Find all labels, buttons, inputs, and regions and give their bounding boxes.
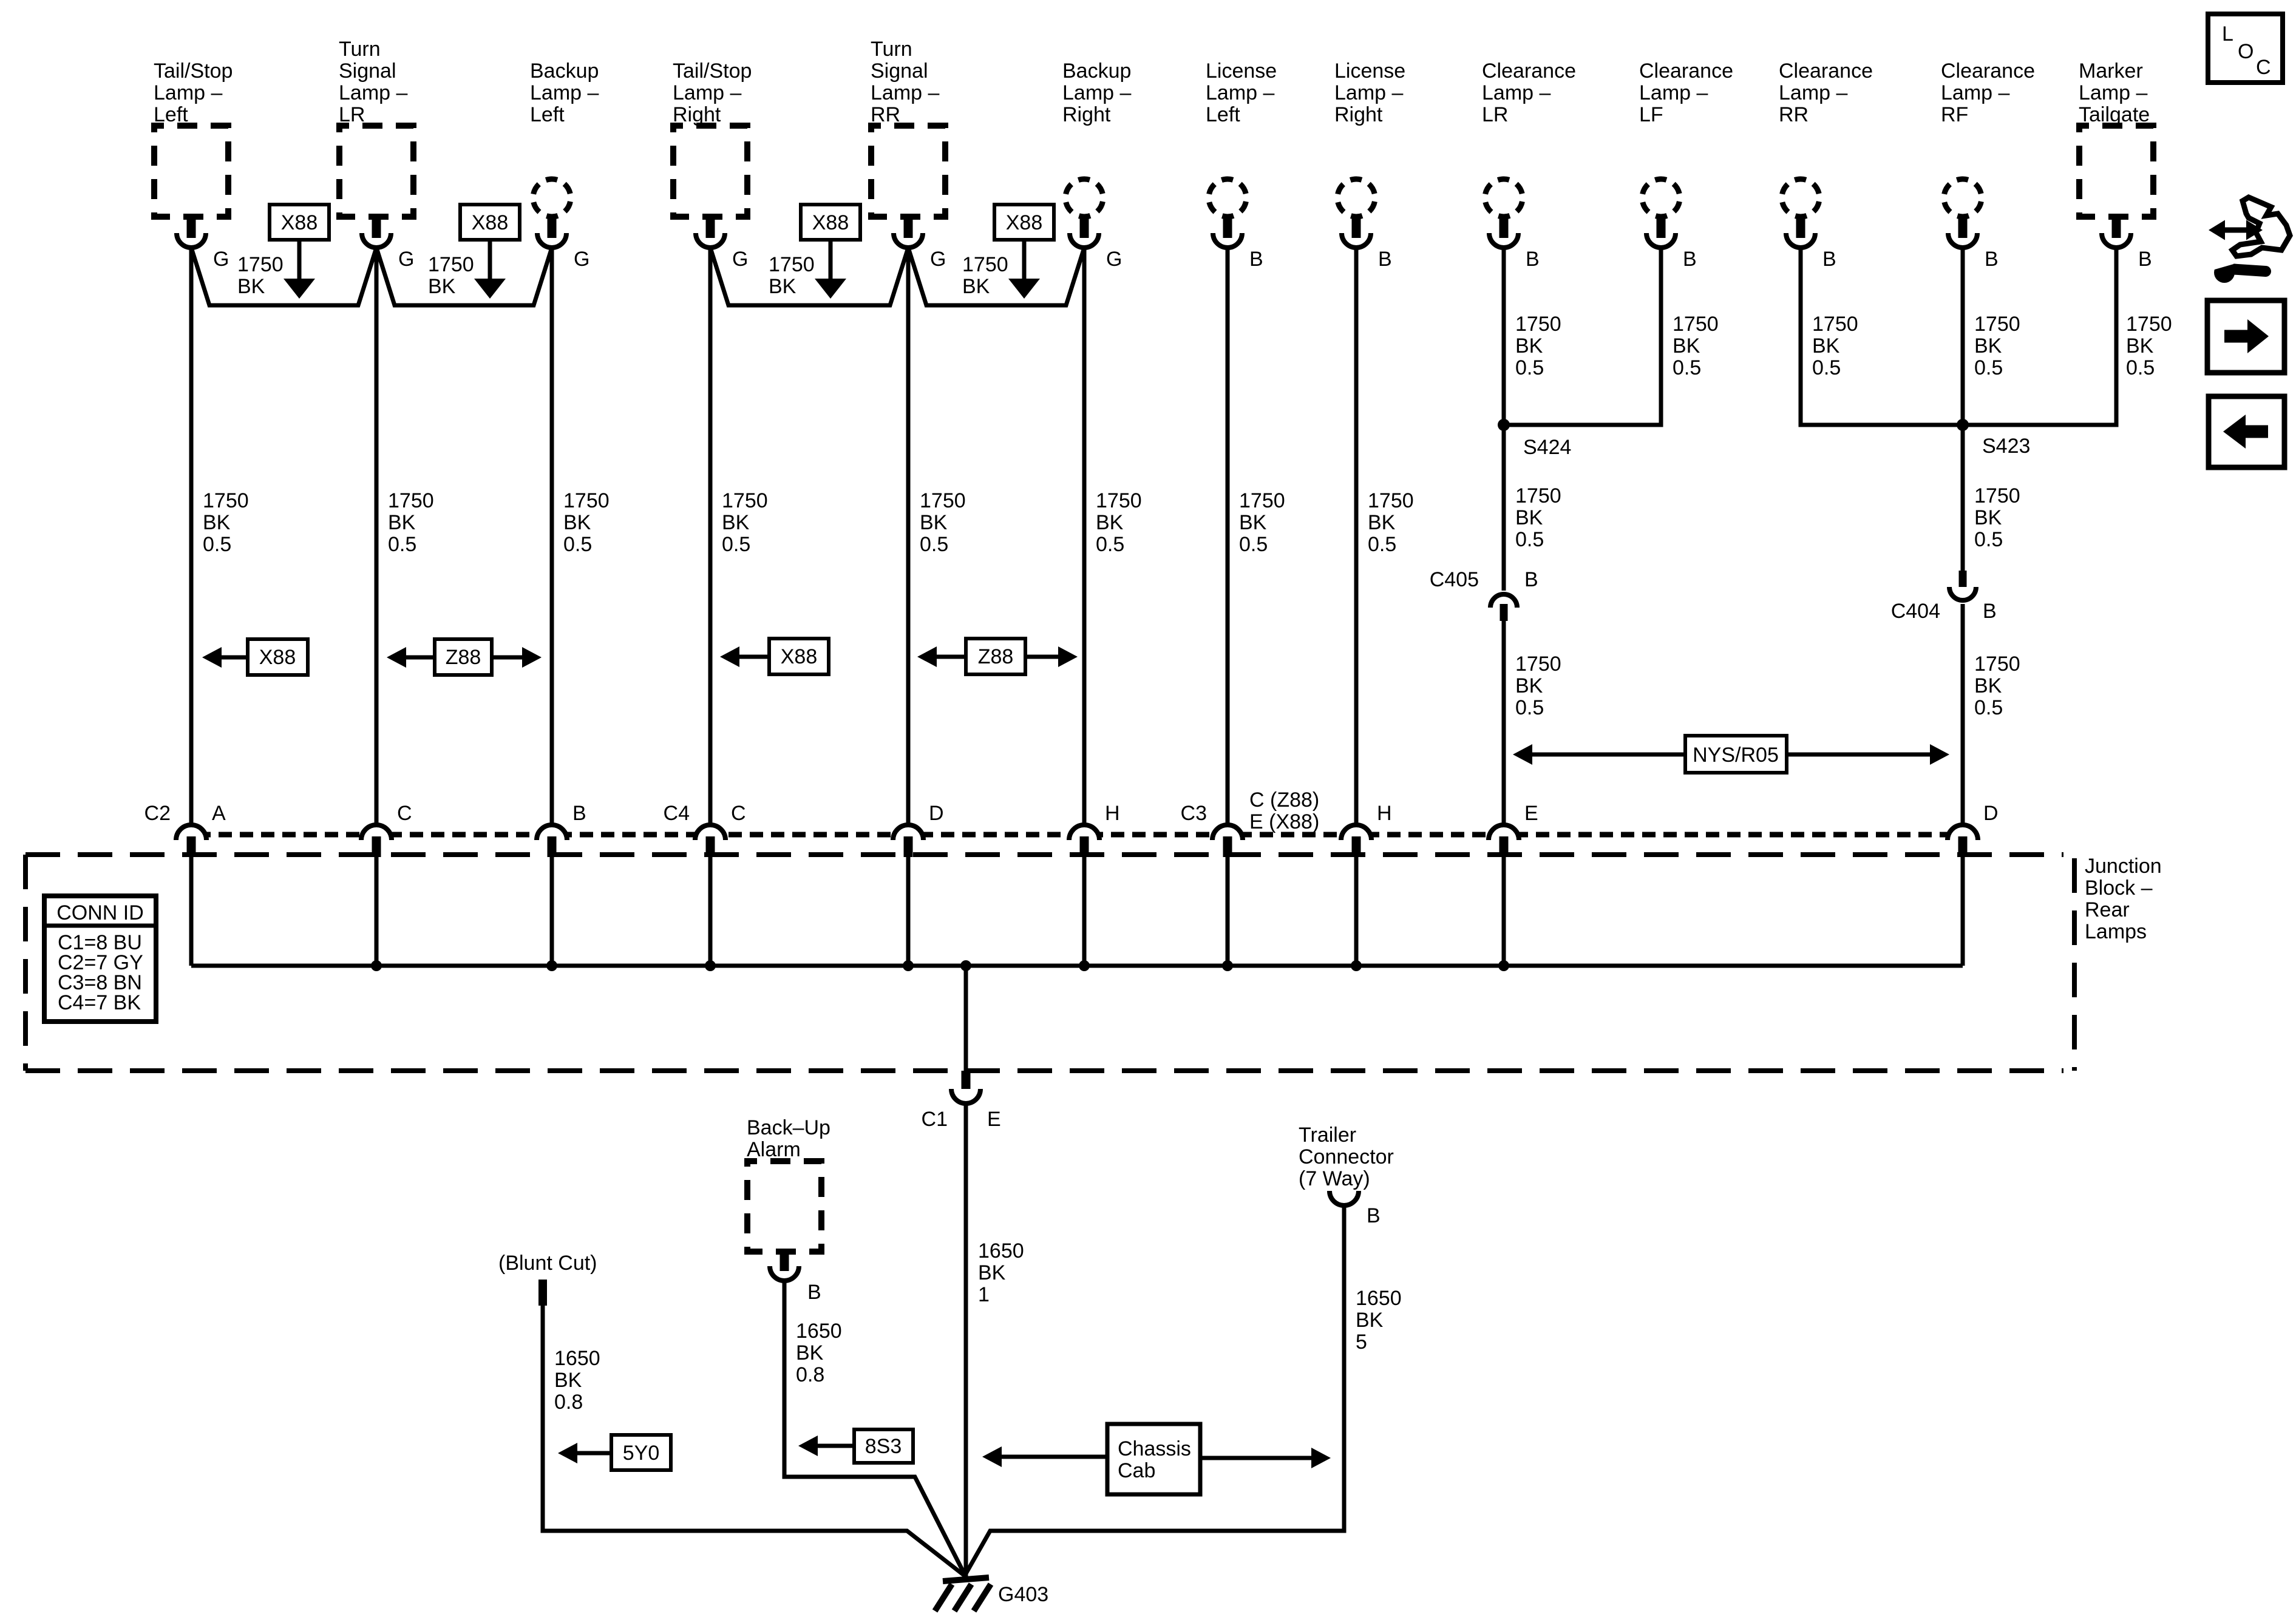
svg-text:C404: C404	[1891, 600, 1940, 623]
svg-text:BK: BK	[722, 511, 750, 534]
svg-text:5Y0: 5Y0	[623, 1442, 660, 1465]
svg-text:Signal: Signal	[339, 59, 396, 83]
svg-text:0.5: 0.5	[1974, 528, 2003, 551]
svg-text:O: O	[2238, 40, 2254, 63]
svg-text:B: B	[2138, 248, 2152, 271]
svg-text:G403: G403	[998, 1583, 1048, 1606]
svg-text:B: B	[1526, 248, 1540, 271]
svg-text:Alarm: Alarm	[747, 1138, 801, 1161]
svg-text:C3: C3	[1181, 802, 1207, 825]
svg-text:H: H	[1105, 802, 1120, 825]
svg-text:LR: LR	[1482, 103, 1508, 126]
svg-text:BK: BK	[920, 511, 948, 534]
svg-text:0.5: 0.5	[563, 533, 592, 556]
svg-text:B: B	[1985, 248, 1999, 271]
svg-text:0.5: 0.5	[1368, 533, 1396, 556]
svg-text:Lamp –: Lamp –	[871, 81, 939, 104]
svg-text:1750: 1750	[1515, 484, 1561, 507]
svg-text:Lamp –: Lamp –	[339, 81, 407, 104]
svg-text:BK: BK	[2126, 334, 2154, 358]
svg-text:Turn: Turn	[871, 38, 912, 61]
svg-text:0.5: 0.5	[1974, 696, 2003, 719]
svg-text:0.5: 0.5	[2126, 356, 2155, 379]
svg-text:BK: BK	[428, 275, 456, 298]
svg-text:C: C	[397, 802, 412, 825]
svg-text:1650: 1650	[554, 1347, 600, 1370]
svg-text:0.5: 0.5	[1673, 356, 1701, 379]
svg-text:1650: 1650	[1356, 1287, 1402, 1310]
svg-text:C: C	[2256, 56, 2271, 79]
svg-text:1650: 1650	[796, 1320, 842, 1343]
svg-text:BK: BK	[1239, 511, 1267, 534]
svg-text:Junction: Junction	[2085, 855, 2162, 878]
svg-text:BK: BK	[388, 511, 416, 534]
svg-text:BK: BK	[796, 1341, 824, 1364]
svg-text:1750: 1750	[1239, 489, 1285, 512]
svg-text:BK: BK	[962, 275, 990, 298]
svg-text:Tail/Stop: Tail/Stop	[673, 59, 752, 83]
svg-text:1750: 1750	[1096, 489, 1142, 512]
svg-text:BK: BK	[1515, 674, 1543, 697]
svg-text:BK: BK	[1368, 511, 1396, 534]
svg-text:Z88: Z88	[446, 646, 481, 669]
svg-text:B: B	[1983, 600, 1997, 623]
svg-text:BK: BK	[237, 275, 265, 298]
svg-text:X88: X88	[281, 211, 318, 234]
svg-text:License: License	[1334, 59, 1405, 83]
svg-text:X88: X88	[781, 645, 818, 668]
svg-text:BK: BK	[1812, 334, 1840, 358]
svg-text:Clearance: Clearance	[1941, 59, 2035, 83]
svg-text:C4: C4	[664, 802, 690, 825]
svg-text:0.5: 0.5	[1096, 533, 1124, 556]
svg-text:B: B	[1378, 248, 1392, 271]
svg-text:Trailer: Trailer	[1299, 1124, 1356, 1147]
svg-text:Lamp –: Lamp –	[1941, 81, 2009, 104]
svg-text:B: B	[1524, 568, 1538, 591]
svg-text:Lamp –: Lamp –	[1334, 81, 1403, 104]
svg-text:1750: 1750	[237, 253, 284, 276]
svg-text:0.5: 0.5	[203, 533, 231, 556]
svg-text:1750: 1750	[1368, 489, 1414, 512]
svg-text:C405: C405	[1430, 568, 1479, 591]
svg-text:L: L	[2222, 22, 2233, 46]
svg-text:X88: X88	[259, 646, 296, 669]
svg-text:0.5: 0.5	[1515, 696, 1544, 719]
svg-text:Back–Up: Back–Up	[747, 1116, 830, 1139]
svg-text:Clearance: Clearance	[1639, 59, 1733, 83]
svg-text:B: B	[807, 1281, 821, 1304]
svg-text:Left: Left	[530, 103, 565, 126]
svg-text:Lamp –: Lamp –	[530, 81, 599, 104]
svg-text:1750: 1750	[203, 489, 249, 512]
svg-text:Left: Left	[1206, 103, 1240, 126]
svg-text:C (Z88): C (Z88)	[1249, 788, 1319, 812]
svg-text:Lamp –: Lamp –	[673, 81, 741, 104]
svg-text:Connector: Connector	[1299, 1145, 1394, 1168]
svg-text:0.5: 0.5	[1239, 533, 1268, 556]
svg-text:X88: X88	[472, 211, 509, 234]
svg-text:1750: 1750	[722, 489, 768, 512]
svg-text:B: B	[1683, 248, 1697, 271]
svg-text:Rear: Rear	[2085, 898, 2130, 921]
svg-text:E: E	[1524, 802, 1538, 825]
svg-text:G: G	[398, 248, 414, 271]
svg-text:S423: S423	[1982, 435, 2030, 458]
svg-text:BK: BK	[769, 275, 796, 298]
svg-text:Lamp –: Lamp –	[1206, 81, 1274, 104]
svg-text:LF: LF	[1639, 103, 1663, 126]
svg-text:1750: 1750	[1812, 313, 1858, 336]
svg-text:A: A	[212, 802, 226, 825]
svg-text:0.5: 0.5	[388, 533, 416, 556]
svg-text:BK: BK	[1974, 506, 2002, 529]
svg-text:BK: BK	[203, 511, 231, 534]
svg-text:8S3: 8S3	[865, 1435, 902, 1458]
svg-text:0.5: 0.5	[1974, 356, 2003, 379]
svg-text:1650: 1650	[978, 1239, 1024, 1263]
svg-text:Lamp –: Lamp –	[1482, 81, 1550, 104]
svg-text:G: G	[732, 248, 748, 271]
svg-text:1750: 1750	[1974, 313, 2020, 336]
svg-text:G: G	[574, 248, 589, 271]
svg-text:D: D	[929, 802, 944, 825]
svg-text:Cab: Cab	[1118, 1459, 1155, 1482]
svg-text:BK: BK	[1673, 334, 1700, 358]
svg-text:Clearance: Clearance	[1779, 59, 1873, 83]
svg-text:BK: BK	[554, 1369, 582, 1392]
svg-text:0.5: 0.5	[1515, 528, 1544, 551]
svg-text:H: H	[1377, 802, 1392, 825]
svg-text:1750: 1750	[563, 489, 610, 512]
svg-text:Block –: Block –	[2085, 876, 2153, 900]
svg-text:BK: BK	[563, 511, 591, 534]
svg-text:E (X88): E (X88)	[1249, 810, 1319, 833]
svg-text:Turn: Turn	[339, 38, 381, 61]
svg-text:Z88: Z88	[978, 645, 1014, 668]
svg-text:B: B	[1822, 248, 1836, 271]
svg-text:Chassis: Chassis	[1118, 1437, 1191, 1460]
svg-text:RF: RF	[1941, 103, 1968, 126]
svg-text:CONN ID: CONN ID	[56, 901, 144, 924]
svg-text:Signal: Signal	[871, 59, 928, 83]
svg-text:X88: X88	[1006, 211, 1043, 234]
svg-text:Marker: Marker	[2079, 59, 2143, 83]
svg-text:Lamp –: Lamp –	[2079, 81, 2147, 104]
svg-text:Lamp –: Lamp –	[1062, 81, 1131, 104]
svg-text:Right: Right	[1062, 103, 1111, 126]
svg-text:0.8: 0.8	[554, 1391, 583, 1414]
svg-text:1750: 1750	[769, 253, 815, 276]
svg-text:Backup: Backup	[530, 59, 599, 83]
svg-text:C1: C1	[922, 1108, 948, 1131]
svg-text:BK: BK	[1515, 506, 1543, 529]
svg-text:1750: 1750	[962, 253, 1008, 276]
svg-text:BK: BK	[1515, 334, 1543, 358]
svg-text:G: G	[1106, 248, 1122, 271]
svg-text:License: License	[1206, 59, 1277, 83]
svg-text:1750: 1750	[388, 489, 434, 512]
svg-text:NYS/R05: NYS/R05	[1693, 744, 1779, 767]
svg-text:Tail/Stop: Tail/Stop	[154, 59, 233, 83]
svg-text:G: G	[213, 248, 229, 271]
svg-text:Right: Right	[1334, 103, 1383, 126]
svg-text:B: B	[572, 802, 586, 825]
svg-text:(7 Way): (7 Way)	[1299, 1167, 1370, 1190]
svg-text:BK: BK	[1974, 674, 2002, 697]
svg-text:1750: 1750	[2126, 313, 2172, 336]
svg-text:0.5: 0.5	[920, 533, 948, 556]
svg-text:BK: BK	[1096, 511, 1124, 534]
svg-text:Backup: Backup	[1062, 59, 1131, 83]
svg-text:C4=7 BK: C4=7 BK	[58, 991, 141, 1014]
svg-text:0.5: 0.5	[722, 533, 750, 556]
svg-text:1750: 1750	[920, 489, 966, 512]
svg-text:5: 5	[1356, 1331, 1367, 1354]
svg-text:X88: X88	[812, 211, 849, 234]
svg-text:Lamp –: Lamp –	[1639, 81, 1708, 104]
svg-text:0.5: 0.5	[1812, 356, 1841, 379]
svg-text:Lamps: Lamps	[2085, 920, 2147, 943]
svg-text:C2: C2	[144, 802, 171, 825]
svg-text:Lamp –: Lamp –	[154, 81, 222, 104]
svg-text:BK: BK	[1974, 334, 2002, 358]
svg-text:1750: 1750	[1974, 484, 2020, 507]
svg-text:Lamp –: Lamp –	[1779, 81, 1847, 104]
svg-text:B: B	[1367, 1204, 1381, 1227]
svg-text:G: G	[930, 248, 946, 271]
svg-text:1: 1	[978, 1283, 990, 1306]
svg-text:RR: RR	[1779, 103, 1809, 126]
svg-text:(Blunt Cut): (Blunt Cut)	[498, 1252, 597, 1275]
svg-text:C: C	[731, 802, 746, 825]
svg-text:Clearance: Clearance	[1482, 59, 1576, 83]
svg-text:BK: BK	[978, 1261, 1006, 1284]
svg-text:B: B	[1249, 248, 1263, 271]
svg-text:BK: BK	[1356, 1309, 1384, 1332]
svg-text:0.8: 0.8	[796, 1363, 824, 1386]
svg-text:1750: 1750	[1673, 313, 1719, 336]
svg-text:D: D	[1983, 802, 1999, 825]
svg-text:0.5: 0.5	[1515, 356, 1544, 379]
svg-text:1750: 1750	[1515, 313, 1561, 336]
svg-text:1750: 1750	[1515, 653, 1561, 676]
svg-text:1750: 1750	[1974, 653, 2020, 676]
svg-text:S424: S424	[1523, 436, 1571, 459]
svg-text:1750: 1750	[428, 253, 474, 276]
svg-text:E: E	[987, 1108, 1001, 1131]
